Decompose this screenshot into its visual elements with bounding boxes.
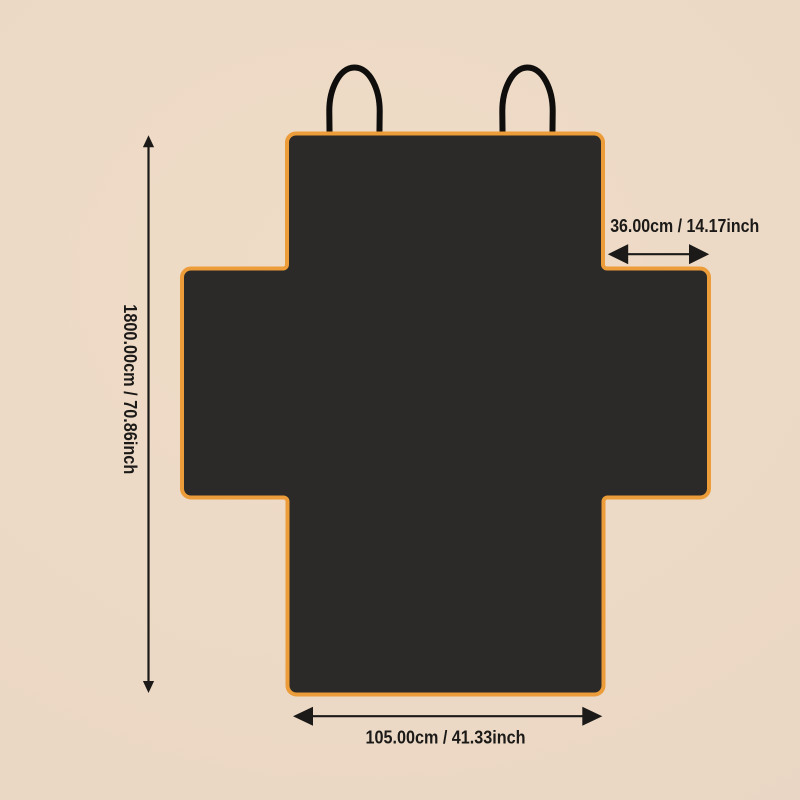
svg-text:36.00cm / 14.17inch: 36.00cm / 14.17inch: [610, 216, 759, 236]
svg-text:105.00cm / 41.33inch: 105.00cm / 41.33inch: [366, 728, 526, 748]
svg-text:1800.00cm / 70.86inch: 1800.00cm / 70.86inch: [120, 304, 140, 474]
